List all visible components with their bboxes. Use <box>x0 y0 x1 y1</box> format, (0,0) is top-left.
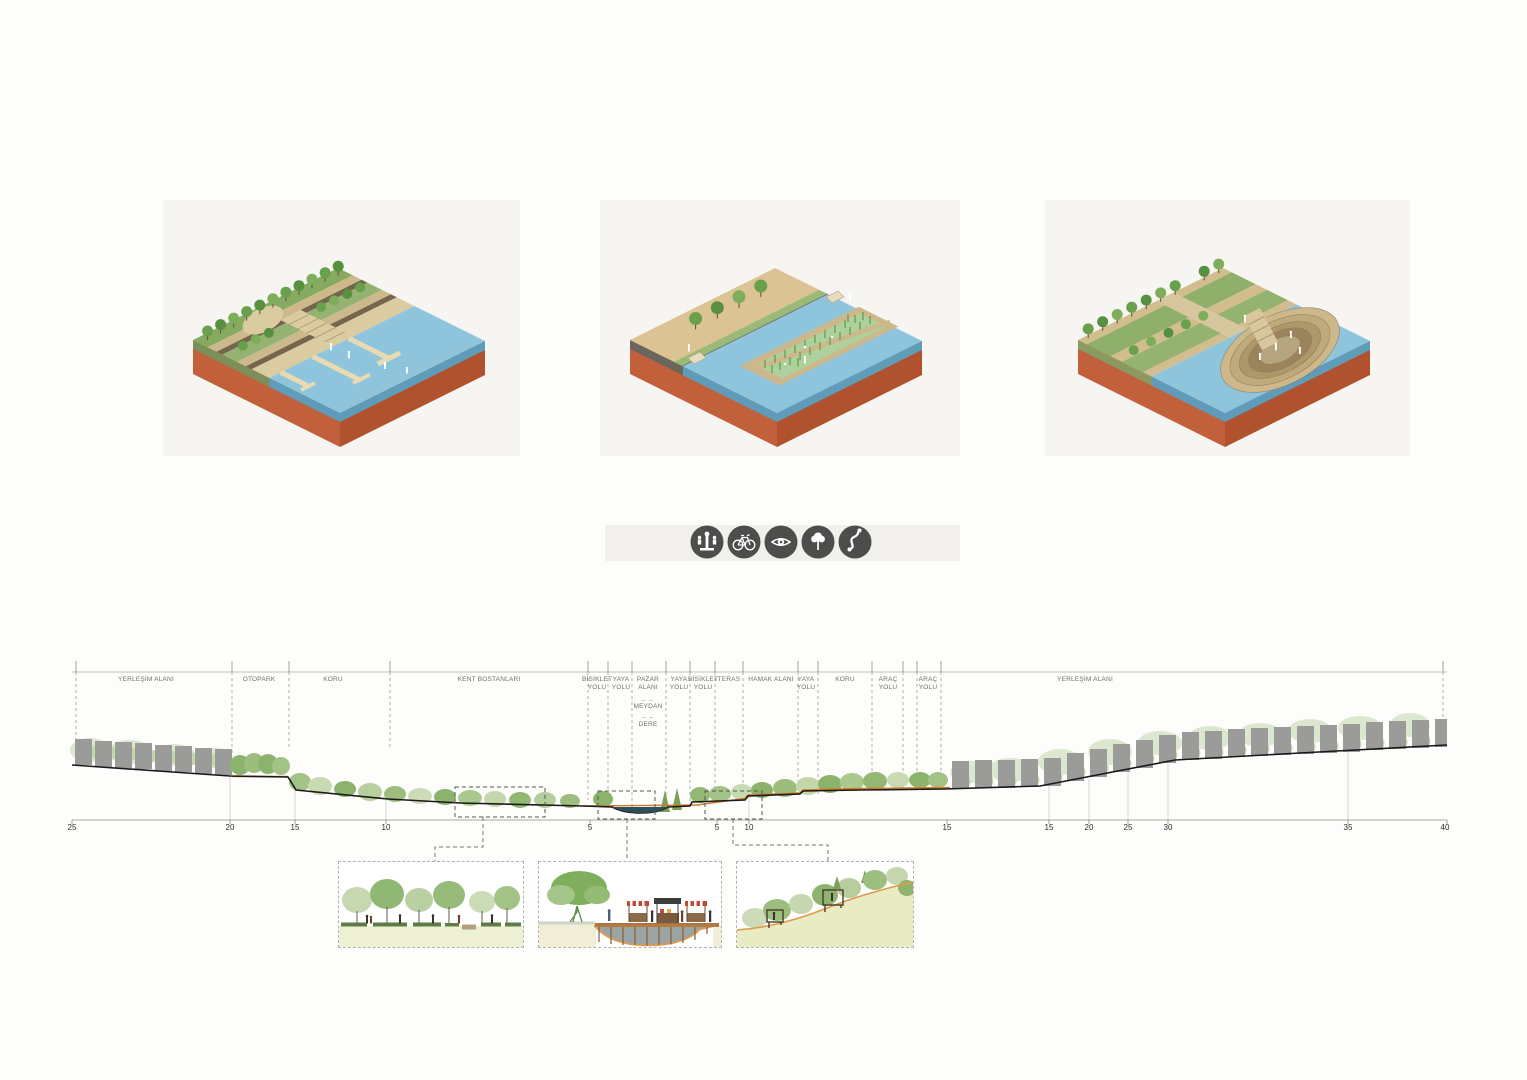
axis-tick-40-right: 40 <box>1433 823 1457 832</box>
axis-tick-15-left: 15 <box>283 823 307 832</box>
presentation-board: YERLEŞİM ALANI OTOPARK KORU KENT BOSTANL… <box>0 0 1527 1080</box>
detail-park-promenade <box>338 861 524 948</box>
fountain-market-icon <box>691 526 724 559</box>
axis-tick-20-right: 20 <box>1077 823 1101 832</box>
axis-tick-20-left: 20 <box>218 823 242 832</box>
valley-trees <box>230 753 948 812</box>
axis-tick-15-right: 15 <box>1037 823 1061 832</box>
winding-path-icon <box>839 526 872 559</box>
isometric-market-platform <box>600 200 960 456</box>
zone-label-arac-yolu-1: ARAÇ YOLU <box>873 676 903 692</box>
zone-label-yerlesim-alani-right: YERLEŞİM ALANI <box>1025 676 1145 684</box>
stream-water <box>612 807 668 813</box>
axis-tick-5-left: 5 <box>578 823 602 832</box>
market-stalls <box>627 898 707 923</box>
detail-market-deck <box>538 861 722 948</box>
deck <box>595 924 719 928</box>
bicycle-icon <box>728 526 761 559</box>
axis-tick-5-right: 5 <box>705 823 729 832</box>
detail-hillside-terraces <box>736 861 914 948</box>
background-canopies <box>70 713 1430 783</box>
axis-tick-25-left: 25 <box>60 823 84 832</box>
zone-label-yaya-yolu-1: YAYA YOLU <box>606 676 636 692</box>
detail-hillside-terraces-art <box>737 862 913 947</box>
zone-label-pazar-alani: PAZAR ALANI <box>633 676 663 692</box>
callout-leaders <box>435 817 828 861</box>
zone-boundary-ticks <box>76 661 1443 672</box>
isometric-amphitheater-cove <box>1048 200 1408 456</box>
isometric-terraced-waterfront <box>163 200 520 456</box>
legend-icons <box>598 523 958 563</box>
zone-label-yerlesim-alani-left: YERLEŞİM ALANI <box>86 676 206 684</box>
zone-label-arac-yolu-2: ARAÇ YOLU <box>913 676 943 692</box>
axis-tick-25-right: 25 <box>1116 823 1140 832</box>
zone-label-dere: DERE <box>628 721 668 729</box>
zone-label-otopark: OTOPARK <box>229 676 289 684</box>
zone-label-teras: TERAS <box>714 676 744 684</box>
axis-tick-15-mid: 15 <box>935 823 959 832</box>
axis-tick-30-right: 30 <box>1156 823 1180 832</box>
eye-icon <box>765 526 798 559</box>
axis-tick-35-right: 35 <box>1336 823 1360 832</box>
detail-market-deck-art <box>539 862 721 947</box>
zone-label-yaya-yolu-3: YAYA YOLU <box>791 676 821 692</box>
zone-label-kent-bostanlari: KENT BOSTANLARI <box>429 676 549 684</box>
zone-separator-2: – – <box>628 714 668 721</box>
people <box>366 914 494 923</box>
zone-label-koru-left: KORU <box>303 676 363 684</box>
zone-label-koru-right: KORU <box>825 676 865 684</box>
tree-icon <box>802 526 835 559</box>
zone-label-meydan: MEYDAN <box>628 703 668 711</box>
big-tree <box>547 871 610 922</box>
detail-park-promenade-art <box>339 862 523 947</box>
axis-tick-10-right: 10 <box>737 823 761 832</box>
axis-tick-10-left: 10 <box>374 823 398 832</box>
